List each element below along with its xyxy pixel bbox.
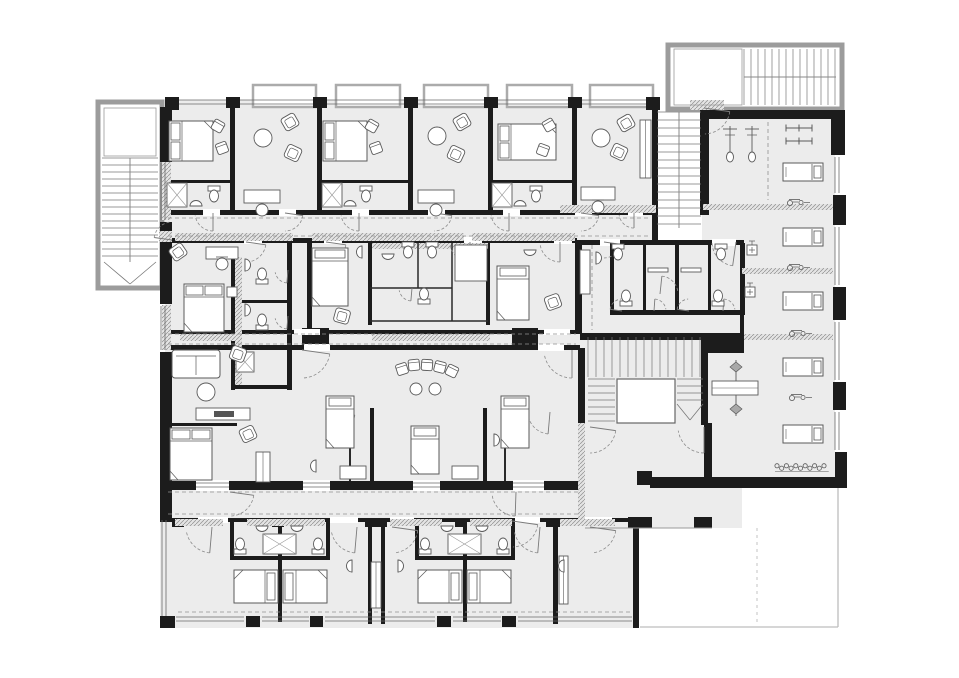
side-chair <box>421 359 433 371</box>
hall-partition <box>483 408 487 485</box>
desk <box>244 190 280 203</box>
wall <box>408 108 413 211</box>
hatch-wall <box>472 233 575 241</box>
bed <box>312 248 348 306</box>
hatch-wall <box>560 519 615 526</box>
wardrobe <box>371 562 381 608</box>
bed <box>283 570 327 603</box>
wall <box>628 517 652 528</box>
shower-closet <box>455 245 487 281</box>
wall <box>231 253 235 390</box>
wall <box>326 518 330 558</box>
wall <box>502 616 516 627</box>
hatch-wall <box>247 519 325 526</box>
wall <box>352 209 369 216</box>
wall <box>740 312 744 334</box>
wall <box>304 344 330 351</box>
treatment-table <box>783 163 823 181</box>
wall <box>160 616 175 628</box>
wall <box>310 616 323 627</box>
bed <box>184 284 224 332</box>
treatment-table <box>783 425 823 443</box>
wall <box>700 108 709 215</box>
bed <box>411 426 439 474</box>
bench <box>648 268 668 272</box>
round-table <box>197 383 215 401</box>
wall <box>330 517 358 523</box>
bed <box>467 570 511 603</box>
wall <box>831 110 845 155</box>
treatment-table <box>783 228 823 246</box>
shower <box>263 534 296 554</box>
curtain-track <box>744 334 833 340</box>
side-table <box>227 287 237 297</box>
bed <box>170 428 212 480</box>
wall <box>704 423 712 479</box>
wall <box>165 423 237 426</box>
sofa <box>172 350 220 378</box>
wall <box>313 97 327 108</box>
wall <box>833 382 846 410</box>
wall <box>230 108 235 211</box>
wall <box>675 243 679 313</box>
shower <box>167 183 187 207</box>
bed <box>497 266 529 320</box>
hatch-wall <box>578 423 585 520</box>
wall <box>610 310 745 315</box>
wall <box>833 195 846 225</box>
bed <box>234 570 278 603</box>
hatch-wall <box>180 334 235 341</box>
side-chair <box>433 360 446 373</box>
wall <box>230 556 330 560</box>
wall <box>643 243 646 313</box>
wall <box>233 385 290 389</box>
cabinet <box>340 466 366 479</box>
wall <box>203 209 220 216</box>
wall <box>568 97 582 108</box>
wall <box>708 243 711 313</box>
hatch-wall <box>470 519 512 526</box>
wall <box>740 243 745 315</box>
hatch-wall <box>560 205 656 213</box>
counter <box>580 250 590 294</box>
treatment-table <box>783 358 823 376</box>
shower <box>448 534 481 554</box>
wardrobe <box>640 120 651 178</box>
wall <box>165 330 580 334</box>
wall <box>165 345 580 350</box>
wall <box>706 333 744 353</box>
bed <box>418 570 462 603</box>
wall <box>553 518 558 624</box>
wall <box>503 209 520 216</box>
wall <box>279 209 296 216</box>
hatch-wall <box>372 334 490 341</box>
hatch-wall <box>175 233 293 241</box>
wall <box>226 97 240 108</box>
wall <box>512 517 540 523</box>
wall <box>303 480 330 491</box>
tv <box>214 411 234 417</box>
round-table <box>429 383 441 395</box>
wall <box>437 616 451 627</box>
wall <box>484 97 498 108</box>
wall <box>413 480 440 491</box>
bed <box>326 396 354 448</box>
hatch-wall <box>162 305 171 350</box>
hall-partition <box>370 408 374 485</box>
wall <box>633 518 639 628</box>
wall <box>368 243 372 325</box>
wall <box>572 108 577 211</box>
treatment-table <box>783 292 823 310</box>
hatch-wall <box>390 519 442 526</box>
shower <box>322 183 342 207</box>
wall <box>694 517 712 528</box>
wall <box>317 108 322 211</box>
side-chair <box>408 359 420 371</box>
curtain-track <box>703 204 833 210</box>
shower <box>492 183 512 207</box>
desk <box>418 190 454 203</box>
hatch-wall <box>312 233 464 241</box>
round-table <box>428 127 446 145</box>
wall <box>415 556 515 560</box>
cabinet <box>452 466 478 479</box>
wall <box>307 243 312 331</box>
bed <box>323 121 367 161</box>
round-table <box>410 383 422 395</box>
wardrobe <box>256 452 270 482</box>
wall <box>455 518 467 527</box>
wall <box>578 348 585 425</box>
wall <box>404 97 418 108</box>
wall <box>701 340 708 425</box>
column <box>637 471 652 485</box>
wall <box>650 477 847 488</box>
round-table <box>254 129 272 147</box>
bed <box>169 121 213 161</box>
wall <box>700 110 835 119</box>
bed <box>501 396 529 448</box>
desk <box>581 187 615 200</box>
wall <box>513 480 544 491</box>
wall <box>833 287 846 320</box>
wall <box>196 480 229 491</box>
round-table <box>592 129 610 147</box>
wall <box>246 616 260 627</box>
floor-plan-svg <box>0 0 959 678</box>
bench <box>681 268 701 272</box>
wall <box>230 518 234 558</box>
floor-plan-page <box>0 0 959 678</box>
wall <box>538 344 564 351</box>
hatch-wall <box>159 231 172 242</box>
hatch-wall <box>175 519 223 526</box>
stair-void <box>617 379 675 423</box>
wall <box>381 518 385 624</box>
